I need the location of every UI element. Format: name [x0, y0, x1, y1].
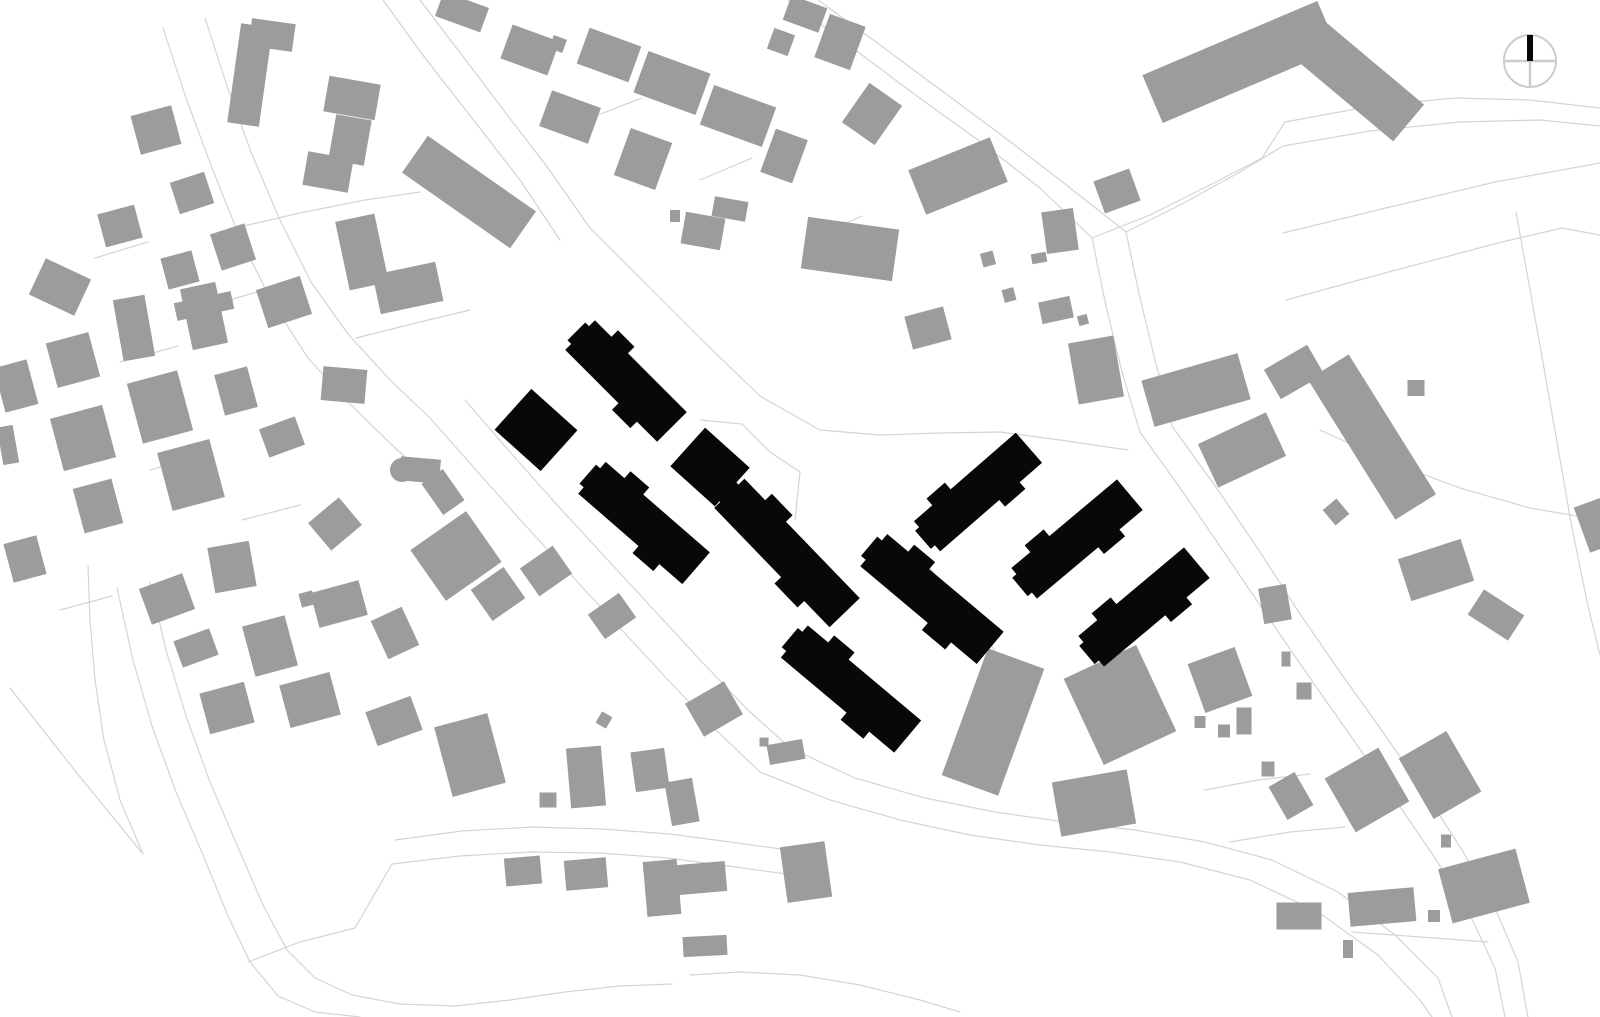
context-building-body: [564, 857, 608, 891]
context-building: [1041, 208, 1079, 254]
context-building: [1195, 716, 1206, 728]
context-building-body: [1428, 910, 1440, 922]
context-building-body: [670, 210, 680, 222]
context-building: [1237, 708, 1252, 735]
context-building: [321, 366, 368, 404]
context-building-body: [566, 746, 606, 809]
context-building-body: [1277, 903, 1322, 930]
compass-north-needle: [1527, 35, 1533, 61]
context-building: [566, 746, 606, 809]
context-building-round-end: [390, 458, 414, 482]
context-building: [1297, 683, 1312, 700]
context-building: [540, 793, 557, 808]
context-building: [643, 859, 682, 917]
context-building: [1343, 940, 1353, 958]
context-building: [780, 841, 832, 903]
context-building-body: [1297, 683, 1312, 700]
site-plan-page: [0, 0, 1600, 1017]
context-building-body: [780, 841, 832, 903]
context-building: [1441, 835, 1451, 848]
context-building-body: [681, 212, 726, 250]
context-building-body: [1195, 716, 1206, 728]
context-building: [1277, 903, 1322, 930]
context-building-body: [207, 541, 256, 594]
north-arrow-compass: [1504, 35, 1556, 87]
context-building-body: [1343, 940, 1353, 958]
context-building-body: [504, 855, 542, 886]
context-building-body: [643, 859, 682, 917]
context-building-body: [1282, 652, 1291, 667]
context-building: [677, 861, 727, 895]
context-building-body: [1441, 835, 1451, 848]
context-building: [760, 738, 769, 747]
context-building-body: [630, 748, 669, 792]
context-building: [1218, 725, 1230, 738]
context-building: [564, 857, 608, 891]
context-building-body: [760, 738, 769, 747]
context-building: [1282, 652, 1291, 667]
context-building-body: [1408, 380, 1425, 396]
context-building: [1428, 910, 1440, 922]
context-building: [207, 541, 256, 594]
context-building: [1348, 887, 1417, 927]
context-building-body: [683, 935, 728, 957]
context-building-body: [1348, 887, 1417, 927]
context-building: [670, 210, 680, 222]
context-building: [1408, 380, 1425, 396]
context-building-body: [540, 793, 557, 808]
context-building-body: [321, 366, 368, 404]
context-building-body: [1237, 708, 1252, 735]
context-building: [504, 855, 542, 886]
context-building: [681, 212, 726, 250]
context-building: [683, 935, 728, 957]
context-building-body: [1041, 208, 1079, 254]
context-building-body: [1218, 725, 1230, 738]
context-building-body: [1262, 762, 1275, 777]
site-plan-map: [0, 0, 1600, 1017]
context-building: [630, 748, 669, 792]
context-building-body: [677, 861, 727, 895]
context-building: [1262, 762, 1275, 777]
